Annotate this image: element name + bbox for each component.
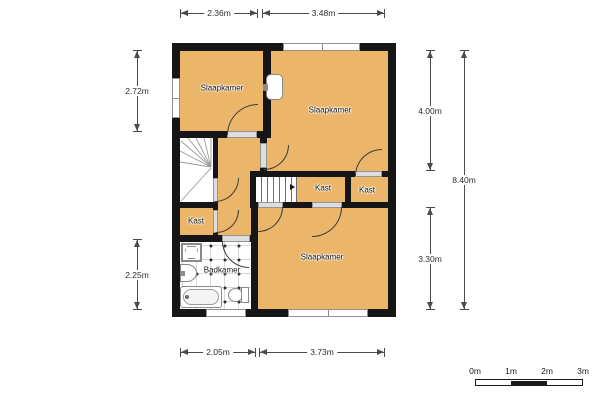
wall-closets-divider: [345, 177, 351, 202]
wall-closet-row-bottom-b: [283, 202, 312, 208]
scale-label-3m: 3m: [577, 366, 589, 376]
room-label-bathroom: Badkamer: [204, 266, 240, 275]
shower-icon: [181, 243, 202, 262]
stair-direction-arrow-icon: [290, 184, 295, 190]
window-top: [283, 43, 360, 51]
room-label-bedroom-top-right: Slaapkamer: [309, 106, 352, 115]
room-label-bedroom-bottom: Slaapkamer: [301, 253, 344, 262]
wall-bedroom3-left: [251, 208, 258, 309]
wall-bathroom-top-a: [172, 235, 222, 242]
window-bottom-left: [206, 309, 246, 317]
room-label-closet-left: Kast: [188, 217, 204, 226]
wall-bedroom1-bottom-b: [257, 131, 271, 138]
bathtub-icon: [180, 286, 222, 308]
floor-plan-canvas: Slaapkamer Slaapkamer Slaapkamer Kast Ka…: [0, 0, 600, 400]
wall-closet-row-top-b: [382, 171, 388, 177]
wall-stair-left: [250, 177, 256, 202]
wall-closet-left-top: [172, 202, 218, 208]
wall-exterior-right: [388, 43, 396, 317]
window-left: [172, 78, 180, 118]
wall-closet-row-top-a: [250, 171, 355, 177]
bedroom-sink-icon: [266, 74, 283, 100]
scale-label-1m: 1m: [505, 366, 517, 376]
wall-landing-right-a: [213, 138, 218, 178]
scale-bar-segment: [511, 381, 547, 385]
scale-bar: 0m 1m 2m 3m: [475, 366, 583, 388]
room-label-closet-right: Kast: [359, 186, 375, 195]
room-label-closet-middle: Kast: [315, 184, 331, 193]
wall-closet-row-bottom-c: [342, 202, 388, 208]
scale-label-2m: 2m: [541, 366, 553, 376]
toilet-tank-icon: [241, 287, 249, 303]
wall-bedroom1-bottom-a: [180, 131, 227, 138]
scale-label-0m: 0m: [469, 366, 481, 376]
room-label-bedroom-top-left: Slaapkamer: [201, 84, 244, 93]
winder-staircase-icon: [180, 138, 213, 202]
window-bottom-right: [288, 309, 368, 317]
